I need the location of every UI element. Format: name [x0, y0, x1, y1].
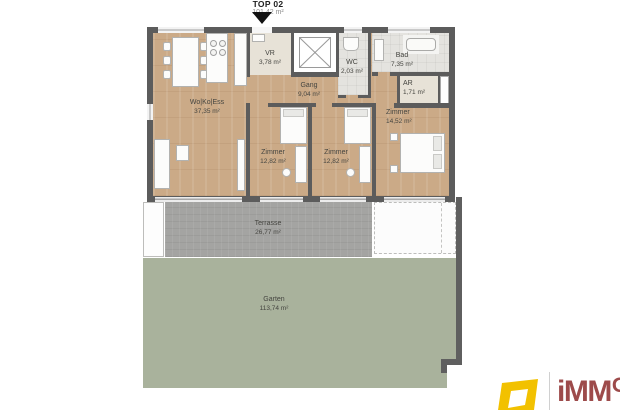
room-area: 113,74 m² [224, 305, 324, 313]
elevator-shaft-icon [299, 37, 331, 68]
room-name: Zimmer [306, 149, 366, 158]
entrance-marker-icon [252, 12, 272, 24]
cooktop-burner-icon [210, 40, 217, 47]
room-name: Gang [284, 82, 334, 91]
room-area: 37,35 m² [167, 108, 247, 116]
logo-divider [549, 372, 550, 410]
room-label-vestibule: VR 3,78 m² [246, 50, 294, 67]
stool [346, 168, 355, 177]
room-label-wc: WC 2,03 m² [330, 59, 374, 76]
dining-table [172, 37, 199, 87]
room-area: 9,04 m² [284, 91, 334, 99]
room-name: Bad [374, 52, 430, 61]
window [320, 197, 366, 202]
nightstand [390, 165, 398, 173]
logo-glyph-icon [494, 378, 540, 410]
room-label-bedroom-left: Zimmer 12,82 m² [243, 149, 303, 166]
cooktop-burner-icon [210, 49, 217, 56]
room-area: 2,03 m² [330, 68, 374, 76]
room-area: 3,78 m² [246, 59, 294, 67]
garden-fence-stub [441, 359, 447, 373]
agency-logo: iMMO [485, 365, 620, 410]
wall [449, 27, 455, 202]
room-name: WC [330, 59, 374, 68]
toilet [343, 37, 359, 51]
entrance-door [252, 27, 272, 33]
room-label-hallway: Gang 9,04 m² [284, 82, 334, 99]
logo-text-main: iMM [557, 375, 611, 408]
wall [438, 76, 440, 104]
chair [163, 56, 171, 65]
room-name: AR [403, 80, 437, 89]
room-label-bedroom-right: Zimmer 14,52 m² [386, 109, 436, 126]
elevator-x-icon [300, 38, 330, 67]
floorplan-image: TOP 02 101,42 m² [0, 0, 620, 410]
room-name: VR [246, 50, 294, 59]
pillow [433, 154, 442, 169]
unit-name: TOP 02 [220, 0, 316, 9]
pillow [433, 136, 442, 151]
room-name: Wo|Ko|Ess [167, 99, 247, 108]
window [384, 197, 445, 202]
window [260, 197, 303, 202]
room-label-bedroom-middle: Zimmer 12,82 m² [306, 149, 366, 166]
bathtub-basin [406, 38, 436, 51]
room-area: 12,82 m² [243, 158, 303, 166]
room-label-garden: Garten 113,74 m² [224, 296, 324, 313]
window [158, 27, 204, 33]
wall [397, 76, 400, 104]
window [147, 104, 153, 120]
sofa [154, 139, 170, 189]
agency-logo-text: iMMO [557, 374, 620, 409]
room-label-storage: AR 1,71 m² [403, 80, 437, 97]
room-area: 26,77 m² [218, 229, 318, 237]
agency-logo-mark-icon [494, 378, 540, 410]
pillow [347, 109, 368, 117]
stool [282, 168, 291, 177]
room-label-living: Wo|Ko|Ess 37,35 m² [167, 99, 247, 116]
room-area: 14,52 m² [386, 118, 436, 126]
window [344, 27, 362, 33]
gravel-strip [374, 202, 456, 254]
room-label-bathroom: Bad 7,35 m² [374, 52, 430, 69]
cooktop-burner-icon [219, 40, 226, 47]
garden-fence [456, 197, 462, 364]
room-area: 1,71 m² [403, 89, 437, 97]
nightstand [390, 133, 398, 141]
wall [358, 95, 371, 98]
chair [163, 70, 171, 79]
wall [372, 103, 376, 196]
room-area: 7,35 m² [374, 61, 430, 69]
room-label-terrace: Terrasse 26,77 m² [218, 220, 318, 237]
wall [338, 95, 346, 98]
terrace-side-strip [143, 202, 164, 257]
coffee-table [176, 145, 189, 161]
wall [394, 103, 449, 108]
service-shaft [440, 76, 449, 104]
window [388, 27, 430, 33]
room-name: Terrasse [218, 220, 318, 229]
room-name: Zimmer [386, 109, 436, 118]
pillow [283, 109, 304, 117]
logo-text-sup: O [612, 374, 620, 397]
wardrobe [252, 34, 265, 42]
window [155, 197, 242, 202]
chair [163, 42, 171, 51]
room-name: Garten [224, 296, 324, 305]
room-name: Zimmer [243, 149, 303, 158]
room-area: 12,82 m² [306, 158, 366, 166]
gravel-strip-divider [441, 203, 442, 253]
cooktop-burner-icon [219, 49, 226, 56]
garden-area-notch [143, 364, 447, 388]
